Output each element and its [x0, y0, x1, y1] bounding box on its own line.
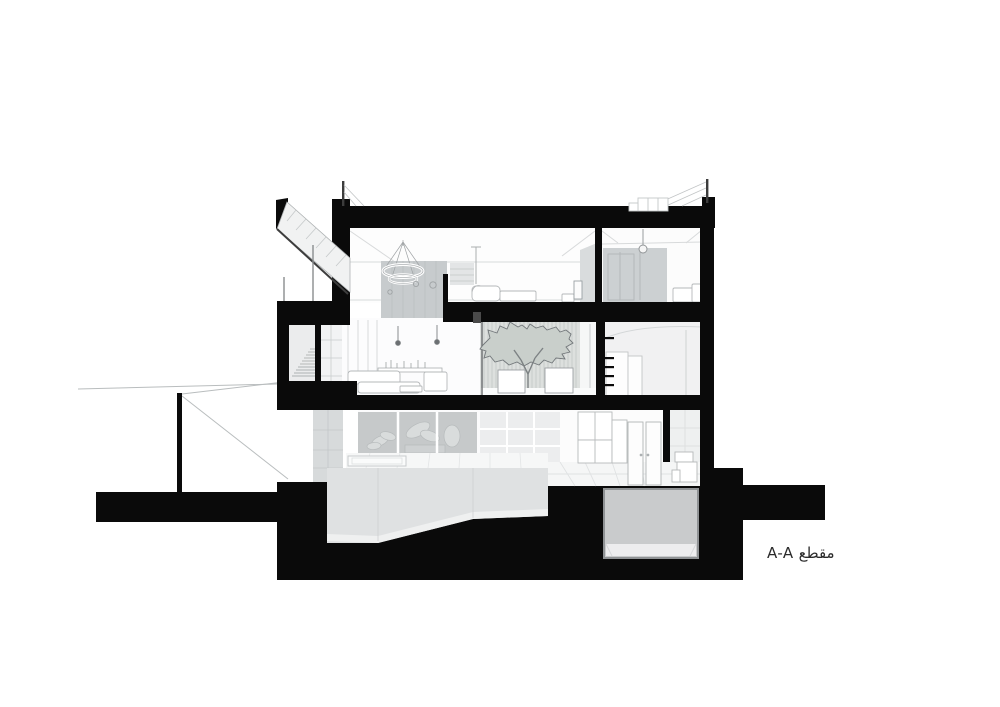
upper-media-wall: [580, 243, 597, 303]
courtyard: [480, 318, 597, 395]
foundation-left: [277, 482, 327, 580]
courtyard-wall: [596, 310, 605, 398]
section-label: A-A مقطع: [767, 544, 877, 562]
roof-parapet-left: [332, 199, 350, 228]
cabinets: [578, 412, 627, 463]
section-drawing-sheet: A-A مقطع: [0, 0, 1000, 707]
tv-panel: [574, 281, 582, 299]
rooftop-box: [629, 198, 668, 211]
void-guard-stub: [443, 274, 448, 304]
roof-parapet-right: [702, 197, 715, 228]
first-floor-slab: [313, 395, 714, 410]
courtyard-door-panel: [580, 322, 596, 395]
bedroom-wardrobe-niche: [603, 248, 667, 302]
right-exterior-wall: [700, 227, 714, 485]
basement-room: [604, 489, 698, 558]
void-edge-shelf: [450, 263, 474, 285]
terrace-slab-left: [277, 301, 350, 325]
spa-rim: [348, 456, 406, 466]
bathroom: [670, 410, 700, 482]
ground-bar-left: [96, 492, 277, 522]
courtyard-beam-block: [473, 312, 481, 323]
building-section-drawing: [0, 0, 1000, 707]
site-ground-lines: [78, 382, 288, 479]
ground-bar-right: [700, 485, 825, 520]
site-wall-post: [177, 393, 182, 493]
left-middle-wall: [277, 325, 289, 383]
stair-window: [289, 322, 315, 381]
living-sofas: [348, 371, 447, 393]
second-floor-slab: [443, 302, 714, 322]
upper-room-divider-wall: [595, 228, 602, 304]
